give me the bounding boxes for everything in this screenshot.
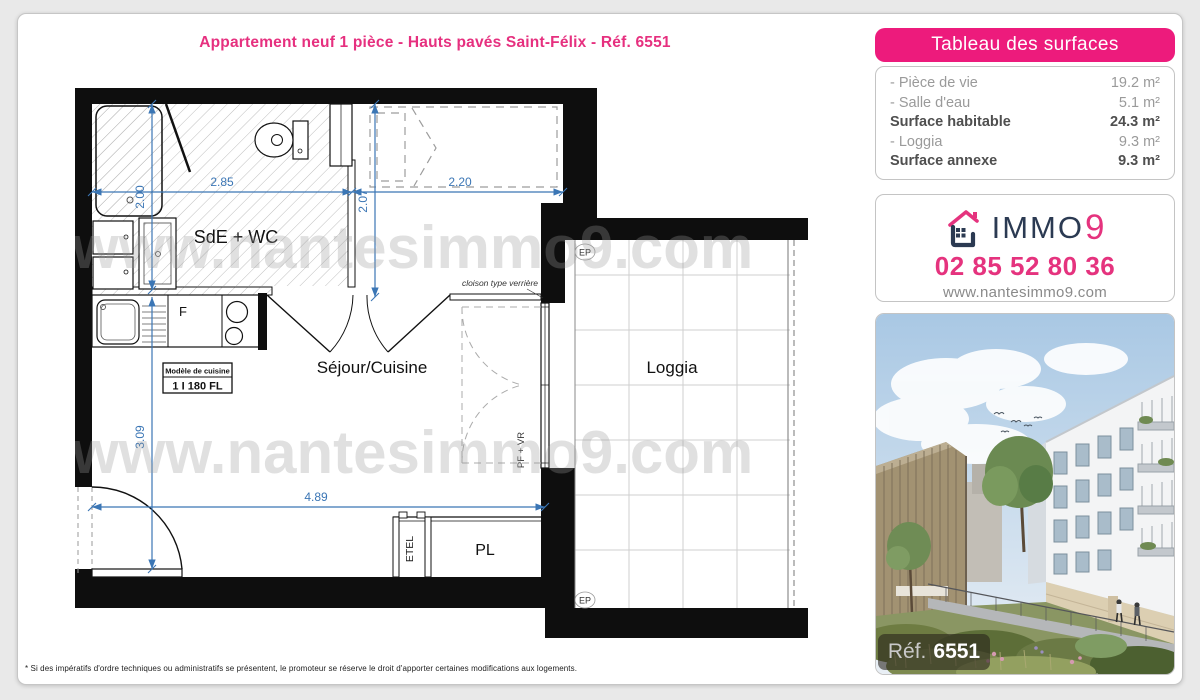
agency-panel: IMMO 9 02 85 52 80 36 www.nantesimmo9.co… [875,194,1175,302]
ep-label-bottom: EP [579,596,591,606]
surface-value: 19.2 m² [1111,75,1160,91]
surface-label: Surface annexe [890,153,997,169]
room-label-sejour: Séjour/Cuisine [317,358,428,377]
surface-label: - Pièce de vie [890,75,978,91]
etel-label: ETEL [404,536,416,562]
ref-label: Réf. [888,640,927,664]
room-label-loggia: Loggia [646,358,698,377]
surface-label: - Loggia [890,134,942,150]
kitchen-model-line1: Modèle de cuisine [165,367,230,376]
table-row-total: Surface annexe 9.3 m² [890,153,1160,173]
floor-plan-drawing: F Modèle de cuisine 1 I 180 FL [75,88,810,643]
svg-text:2.85: 2.85 [210,175,234,189]
sde-double-doors [267,295,450,352]
ref-number: 6551 [933,640,980,664]
immo9-logo: IMMO 9 [876,207,1174,249]
agency-website: www.nantesimmo9.com [876,284,1174,301]
table-row: - Pièce de vie 19.2 m² [890,75,1160,95]
svg-text:www.nantesimmo9.com: www.nantesimmo9.com [75,419,753,486]
table-row: - Loggia 9.3 m² [890,134,1160,154]
surface-value: 9.3 m² [1119,134,1160,150]
table-row: - Salle d'eau 5.1 m² [890,95,1160,115]
surface-value: 24.3 m² [1110,114,1160,130]
kitchen [92,293,267,350]
surface-label: Surface habitable [890,114,1011,130]
surface-label: - Salle d'eau [890,95,970,111]
footer-disclaimer: * Si des impératifs d'ordre techniques o… [25,664,845,673]
fridge-label: F [179,304,187,319]
toilet [255,121,308,159]
floor-plan: F Modèle de cuisine 1 I 180 FL [75,88,810,643]
kitchen-model-line2: 1 I 180 FL [172,381,222,393]
svg-text:www.nantesimmo9.com: www.nantesimmo9.com [75,214,753,281]
surface-value: 5.1 m² [1119,95,1160,111]
verriere-partition [450,294,541,300]
house-icon [946,207,986,249]
agency-phone: 02 85 52 80 36 [876,251,1174,282]
surfaces-table-header: Tableau des surfaces [875,28,1175,62]
table-row-total: Surface habitable 24.3 m² [890,114,1160,134]
logo-immo-text: IMMO [992,210,1084,246]
page-title: Appartement neuf 1 pièce - Hauts pavés S… [20,34,850,52]
watermark: www.nantesimmo9.com www.nantesimmo9.com [75,214,753,486]
building-photo: Réf. 6551 [875,313,1175,675]
svg-text:4.89: 4.89 [304,490,328,504]
surfaces-table: - Pièce de vie 19.2 m² - Salle d'eau 5.1… [875,66,1175,180]
surface-value: 9.3 m² [1118,153,1160,169]
svg-text:2.00: 2.00 [133,185,147,209]
photo-ref-badge: Réf. 6551 [878,634,990,670]
svg-text:2.07: 2.07 [356,189,370,213]
building-illustration [876,314,1174,674]
room-label-pl: PL [475,542,495,559]
entrance-door [78,487,182,577]
logo-nine-text: 9 [1085,208,1104,248]
svg-text:2.20: 2.20 [448,175,472,189]
